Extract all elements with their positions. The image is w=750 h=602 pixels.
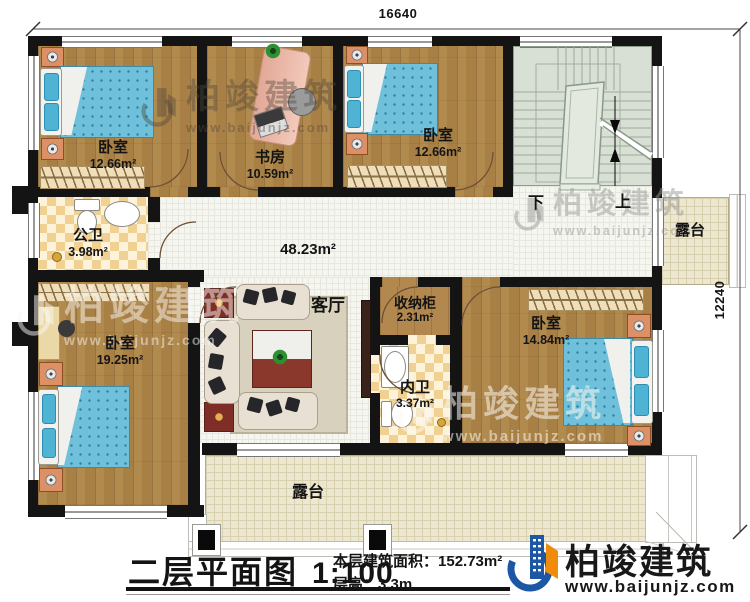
stair-label-down: 下: [520, 195, 552, 213]
room-name: 客厅: [300, 296, 356, 315]
room-name: 卧室: [72, 336, 168, 353]
room-name: 卧室: [390, 128, 486, 145]
room-area: 48.23m²: [256, 242, 360, 259]
room-area: 10.59m²: [225, 167, 315, 181]
door-arcs: [150, 149, 500, 393]
room-area: 14.84m²: [498, 333, 594, 347]
floor-height-info: 层高：3.3m: [333, 573, 412, 594]
floor-area-value: 152.73m²: [438, 553, 502, 570]
room-area: 12.66m²: [390, 145, 486, 159]
room-label-bedroom-right: 卧室 14.84m²: [498, 316, 594, 347]
title-underline-thin: [126, 594, 510, 595]
stair-label-up: 上: [607, 194, 639, 212]
room-name: 露台: [660, 223, 720, 240]
floor-area-label: 本层建筑面积：: [333, 553, 438, 570]
room-area: 19.25m²: [72, 353, 168, 367]
room-name: 卧室: [498, 316, 594, 333]
company-logo-icon: [506, 529, 562, 595]
room-label-terrace-right: 露台: [660, 223, 720, 240]
floor-height-label: 层高：: [333, 576, 378, 593]
room-name: 内卫: [380, 380, 450, 397]
room-label-living-room: 客厅: [300, 296, 356, 315]
room-label-bedroom-bottom-left: 卧室 19.25m²: [72, 336, 168, 367]
room-name: 公卫: [40, 228, 136, 245]
room-label-storage: 收纳柜 2.31m²: [380, 296, 450, 325]
room-label-terrace-bottom: 露台: [268, 484, 348, 502]
room-label-hall-area: 48.23m²: [256, 242, 360, 259]
door-arc: [462, 287, 500, 325]
room-name: 收纳柜: [380, 296, 450, 312]
floor-area-info: 本层建筑面积：152.73m²: [333, 550, 502, 571]
company-logo-website: www.baijunjz.com: [565, 577, 736, 597]
door-arc: [160, 222, 196, 258]
room-label-bedroom-top-left: 卧室 12.66m²: [60, 140, 166, 171]
floor-height-value: 3.3m: [378, 576, 412, 593]
vector-overlay: [0, 0, 750, 602]
room-name: 卧室: [60, 140, 166, 157]
room-area: 3.37m²: [380, 397, 450, 410]
room-area: 12.66m²: [60, 157, 166, 171]
title-underline: [126, 587, 510, 591]
room-area: 3.98m²: [40, 245, 136, 259]
dimension-right: 12240: [712, 264, 728, 336]
stair-rail: [601, 122, 651, 156]
room-name: 书房: [225, 150, 315, 167]
room-label-bedroom-top-right: 卧室 12.66m²: [390, 128, 486, 159]
room-label-study: 书房 10.59m²: [225, 150, 315, 181]
floor-plan-page: 柏竣建筑 www.baijunjz.com 柏竣建筑 www.baijunjz.…: [0, 0, 750, 602]
stair-sill: [560, 184, 600, 190]
door-arc: [200, 287, 236, 323]
room-label-inner-bathroom: 内卫 3.37m²: [380, 380, 450, 410]
plan-title-text: 二层平面图: [128, 554, 298, 590]
room-label-public-bathroom: 公卫 3.98m²: [40, 228, 136, 259]
stair-rail: [600, 118, 651, 152]
room-area: 2.31m²: [380, 312, 450, 325]
room-name: 露台: [268, 484, 348, 502]
dimension-top: 16640: [362, 6, 434, 21]
